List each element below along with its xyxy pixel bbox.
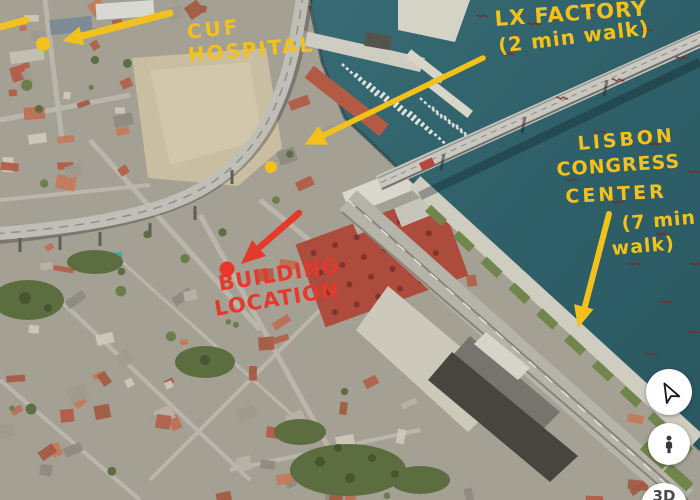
annotation-graphics (0, 0, 700, 500)
aerial-map[interactable]: CUF HOSPITAL LX FACTORY (2 min walk) LIS… (0, 0, 700, 500)
person-icon (658, 433, 680, 455)
pegman-button[interactable] (648, 423, 690, 465)
compass-button[interactable] (646, 369, 692, 415)
navigation-arrow-icon (656, 379, 682, 405)
congress-center-arrow (574, 214, 609, 328)
congress-center-label-line3: CENTER (565, 183, 667, 207)
cuf-hospital-dot (36, 37, 50, 51)
lx-factory-dot (265, 161, 277, 173)
congress-center-label-line5: walk) (611, 234, 676, 258)
lx-factory-arrow (265, 58, 483, 173)
cuf-hospital-arrow (0, 13, 170, 51)
view-3d-label: 3D (653, 487, 676, 500)
